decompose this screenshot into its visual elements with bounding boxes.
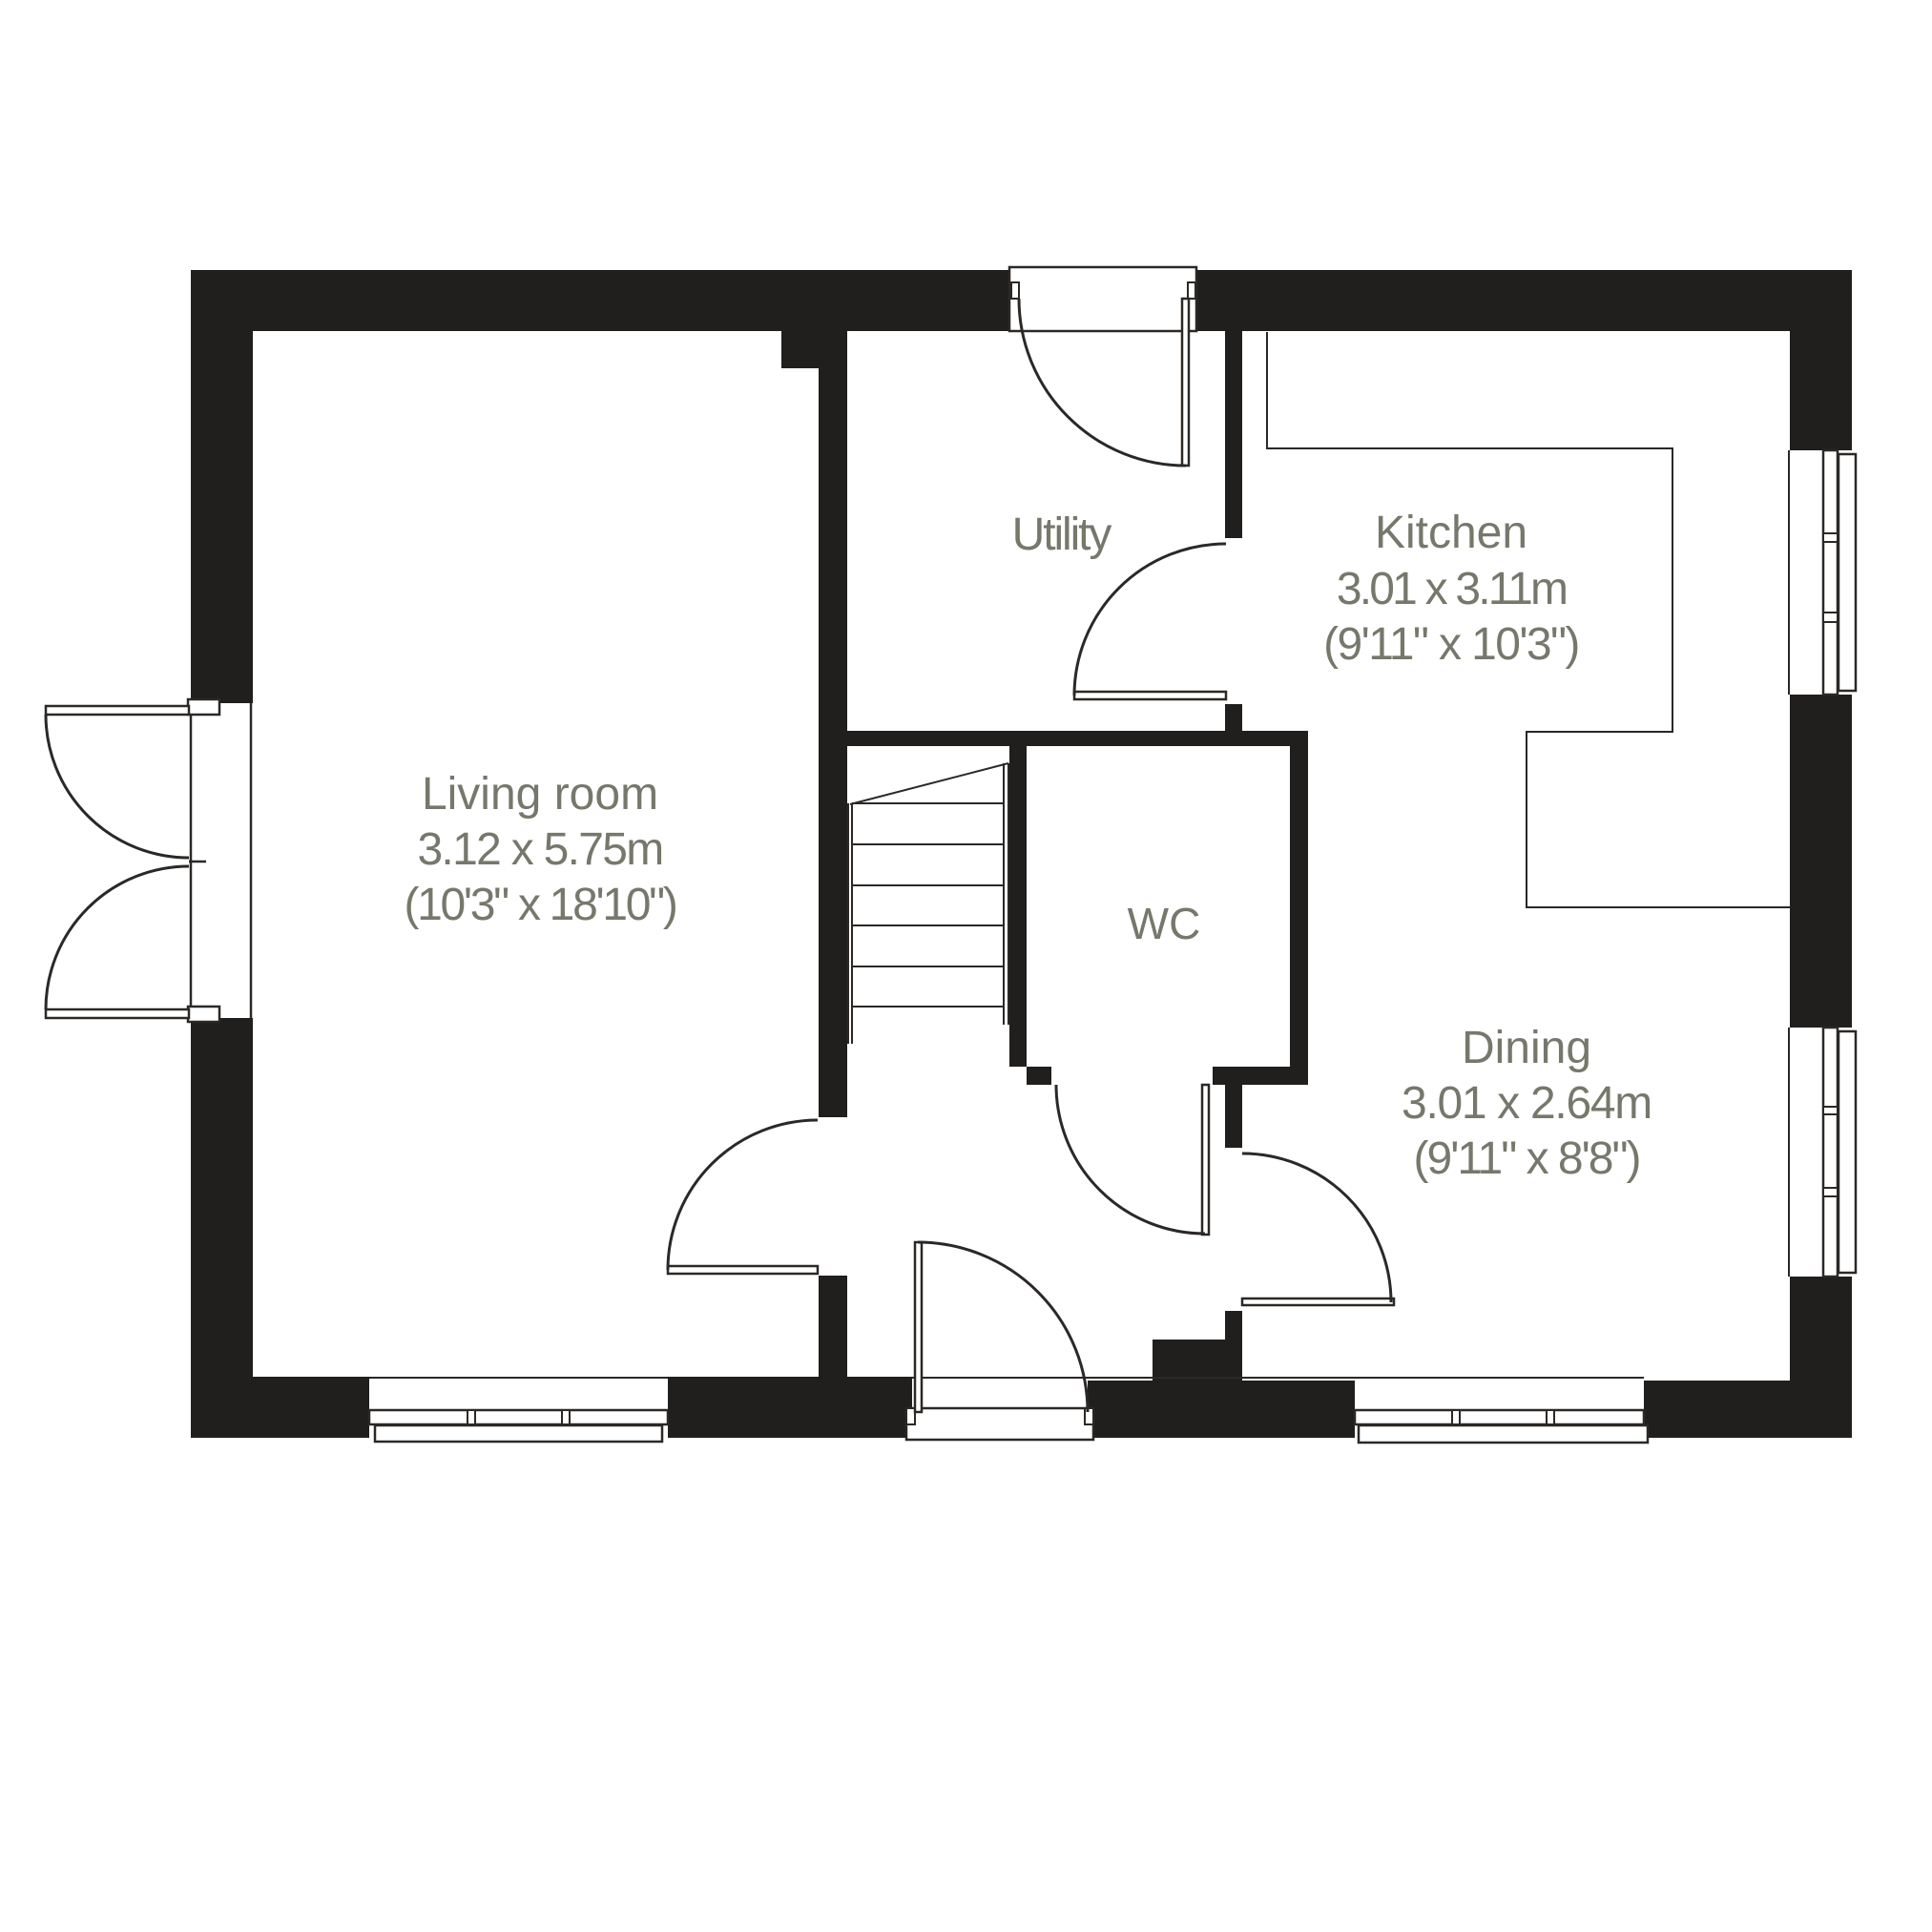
svg-text:(9'11" x 8'8"): (9'11" x 8'8") bbox=[1414, 1133, 1640, 1184]
svg-text:(10'3" x 18'10"): (10'3" x 18'10") bbox=[404, 880, 675, 930]
svg-text:3.01 x 3.11m: 3.01 x 3.11m bbox=[1337, 564, 1566, 614]
svg-text:Living room: Living room bbox=[422, 769, 658, 820]
svg-text:Kitchen: Kitchen bbox=[1375, 508, 1527, 558]
svg-text:Dining: Dining bbox=[1462, 1023, 1591, 1073]
svg-text:WC: WC bbox=[1128, 899, 1201, 948]
svg-text:(9'11" x 10'3"): (9'11" x 10'3") bbox=[1323, 619, 1579, 670]
svg-text:3.12 x 5.75m: 3.12 x 5.75m bbox=[417, 824, 662, 875]
svg-text:Utility: Utility bbox=[1012, 509, 1112, 560]
svg-text:3.01 x 2.64m: 3.01 x 2.64m bbox=[1402, 1078, 1652, 1129]
